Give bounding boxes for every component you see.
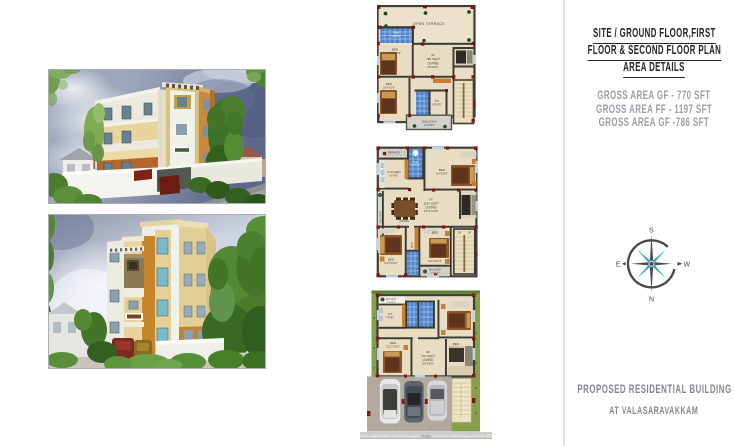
svg-text:10'0"X10'4.5": 10'0"X10'4.5" <box>428 261 442 263</box>
svg-text:W: W <box>684 262 691 269</box>
svg-text:4'0"X8'0": 4'0"X8'0" <box>411 165 420 167</box>
svg-text:KIT: KIT <box>388 312 393 316</box>
svg-text:DN: DN <box>458 232 462 235</box>
svg-text:BED: BED <box>390 341 397 345</box>
svg-text:E: E <box>616 262 621 269</box>
svg-text:8'0"X9'0": 8'0"X9'0" <box>389 176 398 178</box>
svg-text:DINING: DINING <box>400 219 410 223</box>
svg-text:BALCONY: BALCONY <box>379 210 383 223</box>
svg-text:BALCONY: BALCONY <box>422 120 436 124</box>
svg-text:SERVICE: SERVICE <box>388 151 400 155</box>
svg-text:24'4.5"X16'0": 24'4.5"X16'0" <box>424 210 438 213</box>
svg-text:KITCHEN: KITCHEN <box>387 170 400 174</box>
svg-text:786 SQFT: 786 SQFT <box>426 57 440 61</box>
svg-text:BED: BED <box>453 342 460 346</box>
svg-text:10'0"X13'0": 10'0"X13'0" <box>436 174 448 176</box>
svg-text:10'6.5"X11'1.5": 10'6.5"X11'1.5" <box>448 348 464 350</box>
svg-text:BALCONY: BALCONY <box>429 268 442 272</box>
svg-text:8'0"X6'0": 8'0"X6'0" <box>432 105 441 107</box>
svg-text:LIVING: LIVING <box>427 62 438 66</box>
svg-text:10'0"X10'0": 10'0"X10'0" <box>389 52 401 55</box>
svg-text:BED: BED <box>386 82 393 86</box>
svg-text:10'1.5"X10'0": 10'1.5"X10'0" <box>386 347 400 349</box>
svg-text:N: N <box>649 296 654 303</box>
svg-text:11'0"X10'4.5": 11'0"X10'4.5" <box>384 263 398 265</box>
svg-text:9'9"X16'0": 9'9"X16'0" <box>428 66 439 69</box>
svg-text:TOE: TOE <box>393 31 399 35</box>
svg-text:16'0"X16'0": 16'0"X16'0" <box>422 363 434 366</box>
svg-text:10'0"X3'0": 10'0"X3'0" <box>424 125 435 127</box>
svg-text:4'0"X8'0": 4'0"X8'0" <box>391 35 401 38</box>
svg-text:TOE: TOE <box>413 160 419 164</box>
svg-text:10'0"X12'0": 10'0"X12'0" <box>383 87 395 90</box>
svg-text:LIVING: LIVING <box>422 358 433 362</box>
svg-text:OPEN TERRACE: OPEN TERRACE <box>413 22 445 26</box>
svg-text:UP: UP <box>468 232 472 235</box>
svg-text:7'9"X3'9": 7'9"X3'9" <box>387 302 396 304</box>
svg-text:BED: BED <box>432 231 439 235</box>
svg-text:7'9"X9'0": 7'9"X9'0" <box>385 318 394 320</box>
svg-text:LIVING: LIVING <box>425 206 436 210</box>
svg-text:BED: BED <box>392 48 399 52</box>
svg-text:SIT OUT: SIT OUT <box>386 297 397 301</box>
svg-text:S: S <box>649 227 654 234</box>
svg-text:KIT: KIT <box>435 99 440 103</box>
svg-text:10'0"X3'0": 10'0"X3'0" <box>431 273 441 275</box>
svg-text:PUJA: PUJA <box>411 242 414 248</box>
svg-text:ROAD: ROAD <box>421 435 431 439</box>
svg-text:BED: BED <box>388 258 395 262</box>
svg-text:BED: BED <box>439 168 446 172</box>
